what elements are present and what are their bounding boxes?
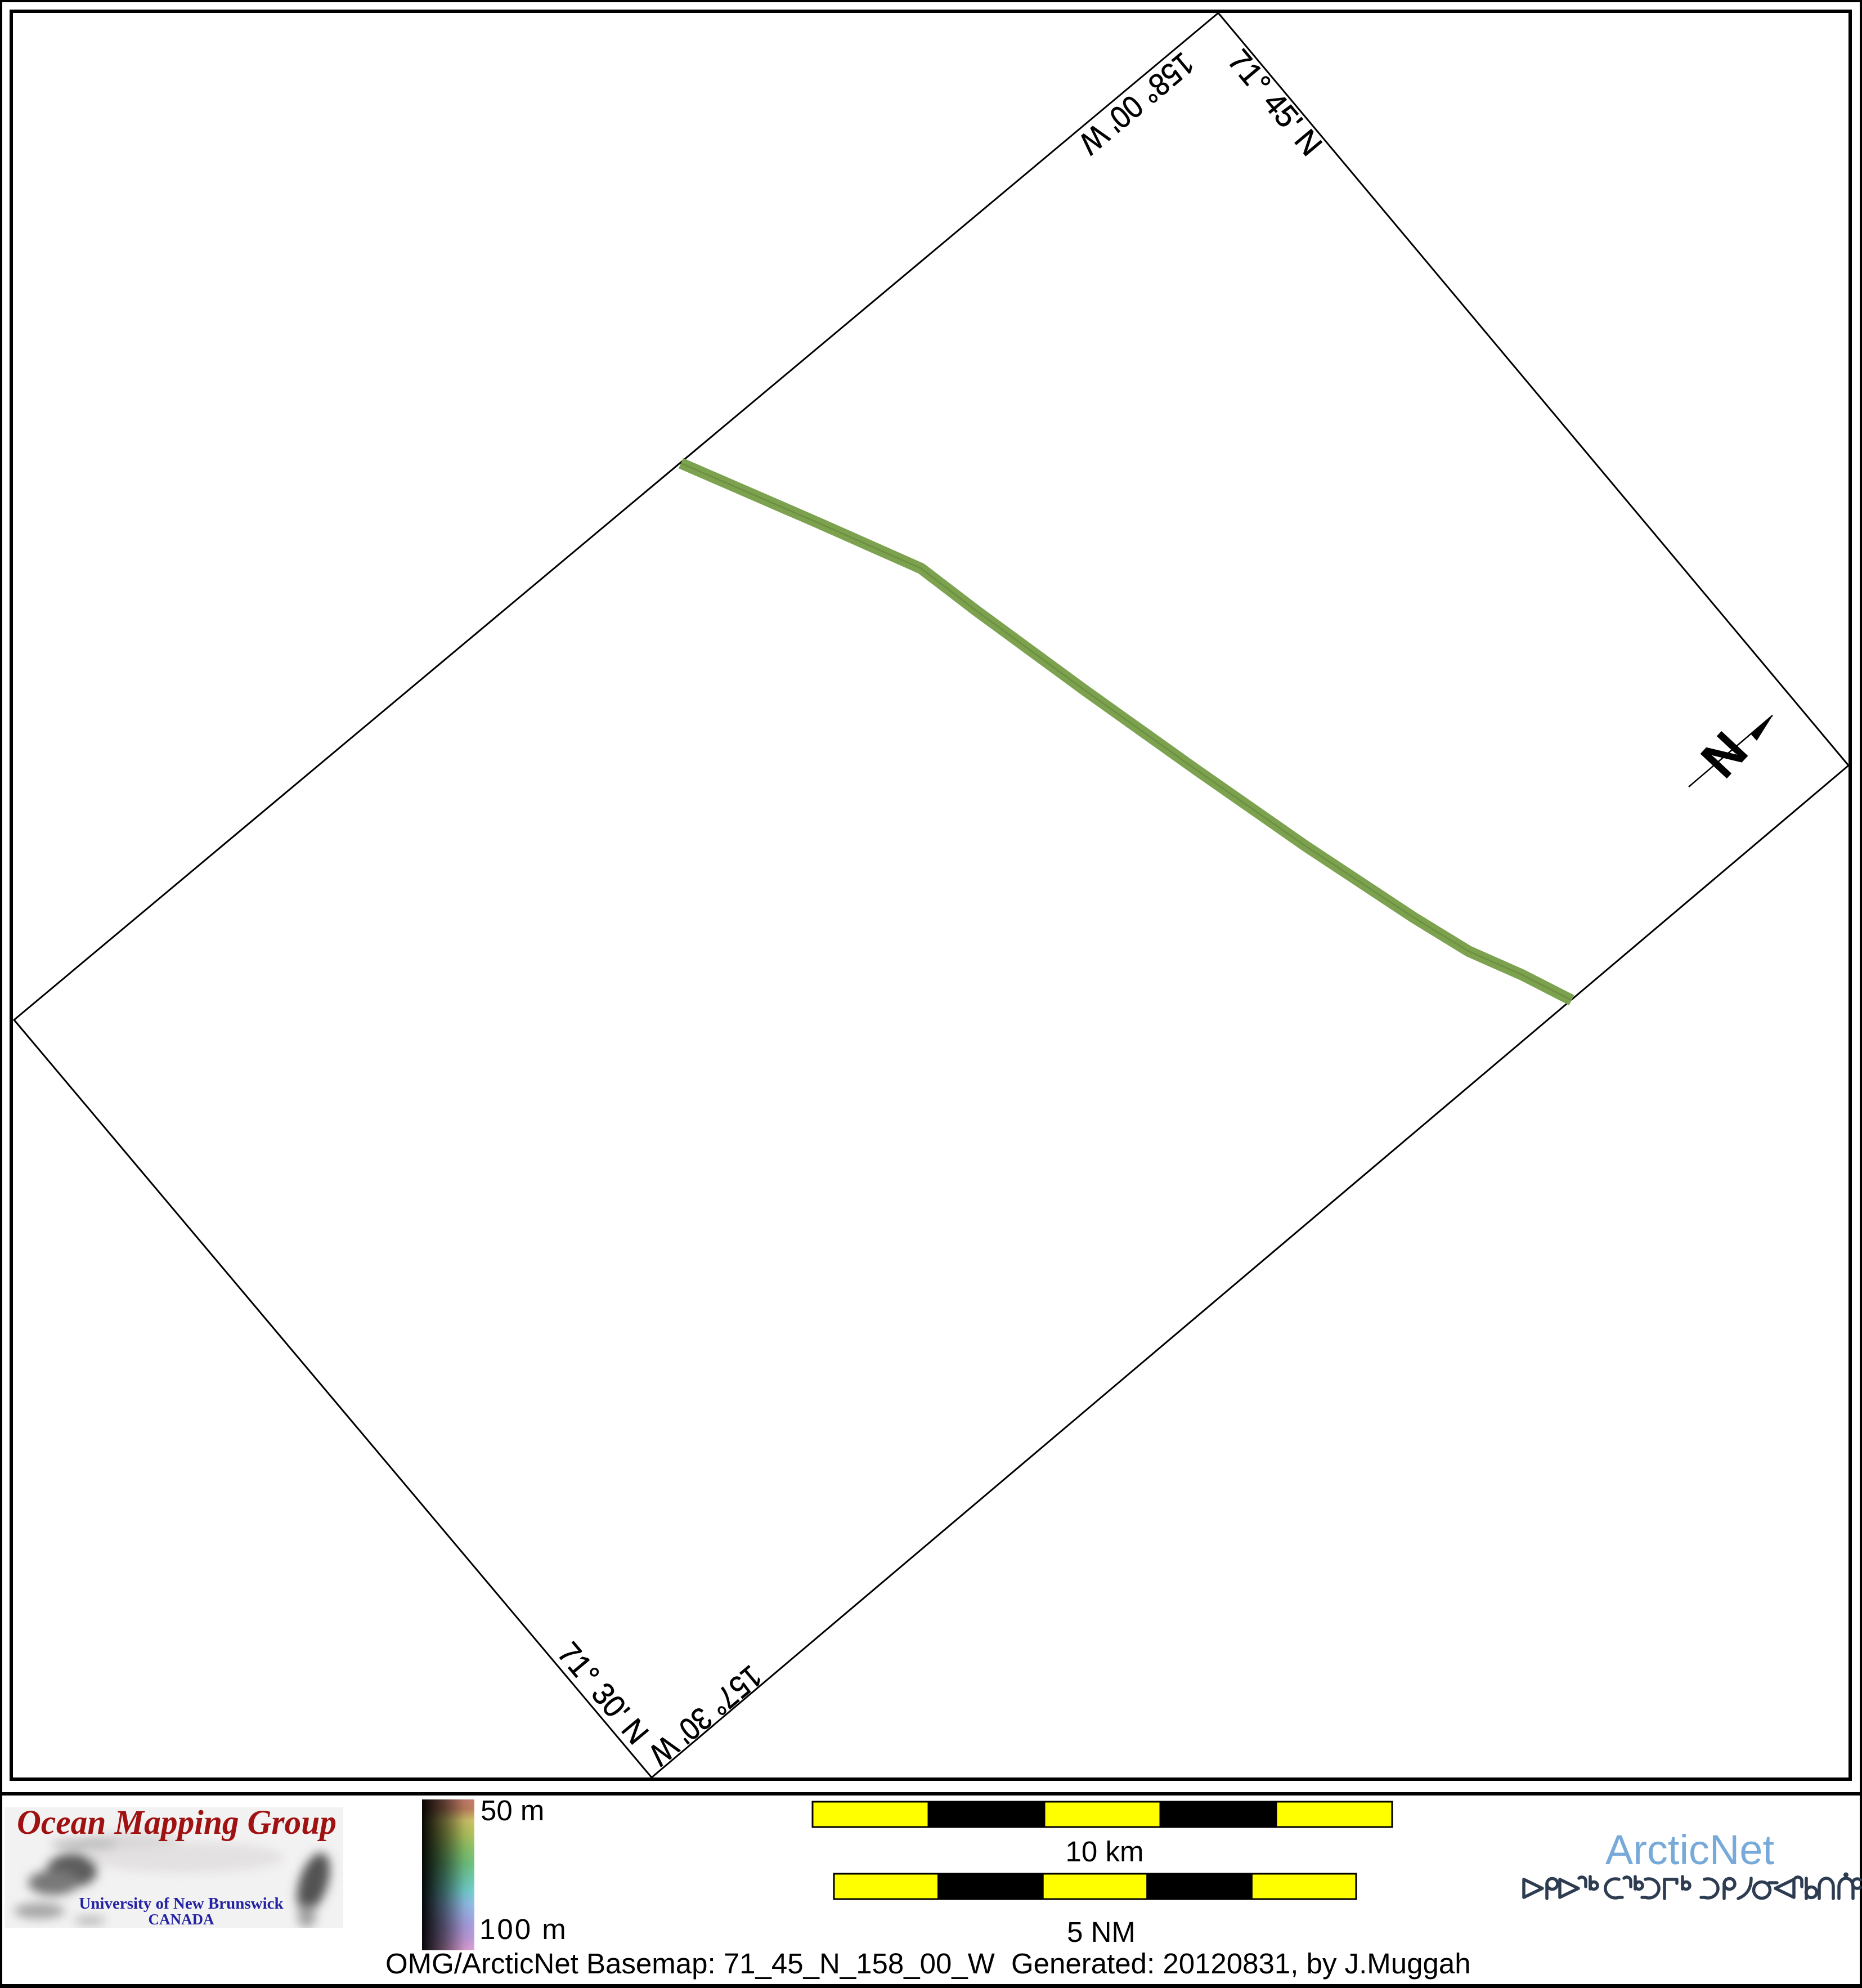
svg-text:158° 00' W: 158° 00' W xyxy=(1073,46,1201,162)
svg-text:ArcticNet: ArcticNet xyxy=(1605,1826,1775,1873)
svg-text:Generated: 20120831, by J.Mugg: Generated: 20120831, by J.Muggah xyxy=(1011,1947,1471,1980)
svg-text:N: N xyxy=(1690,721,1758,789)
svg-text:Ocean Mapping Group: Ocean Mapping Group xyxy=(17,1804,336,1842)
svg-text:100 m: 100 m xyxy=(479,1913,568,1945)
svg-text:10 km: 10 km xyxy=(1066,1835,1144,1868)
svg-text:5 NM: 5 NM xyxy=(1067,1916,1136,1948)
svg-text:OMG/ArcticNet Basemap: 71_45_N: OMG/ArcticNet Basemap: 71_45_N_158_00_W xyxy=(385,1947,995,1980)
svg-text:71° 30' N: 71° 30' N xyxy=(551,1635,656,1750)
svg-text:157° 30' W: 157° 30' W xyxy=(643,1659,769,1772)
svg-text:CANADA: CANADA xyxy=(149,1911,214,1928)
svg-text:University of New Brunswick: University of New Brunswick xyxy=(79,1895,284,1913)
svg-text:71° 45' N: 71° 45' N xyxy=(1221,43,1330,163)
svg-text:50 m: 50 m xyxy=(481,1794,544,1826)
